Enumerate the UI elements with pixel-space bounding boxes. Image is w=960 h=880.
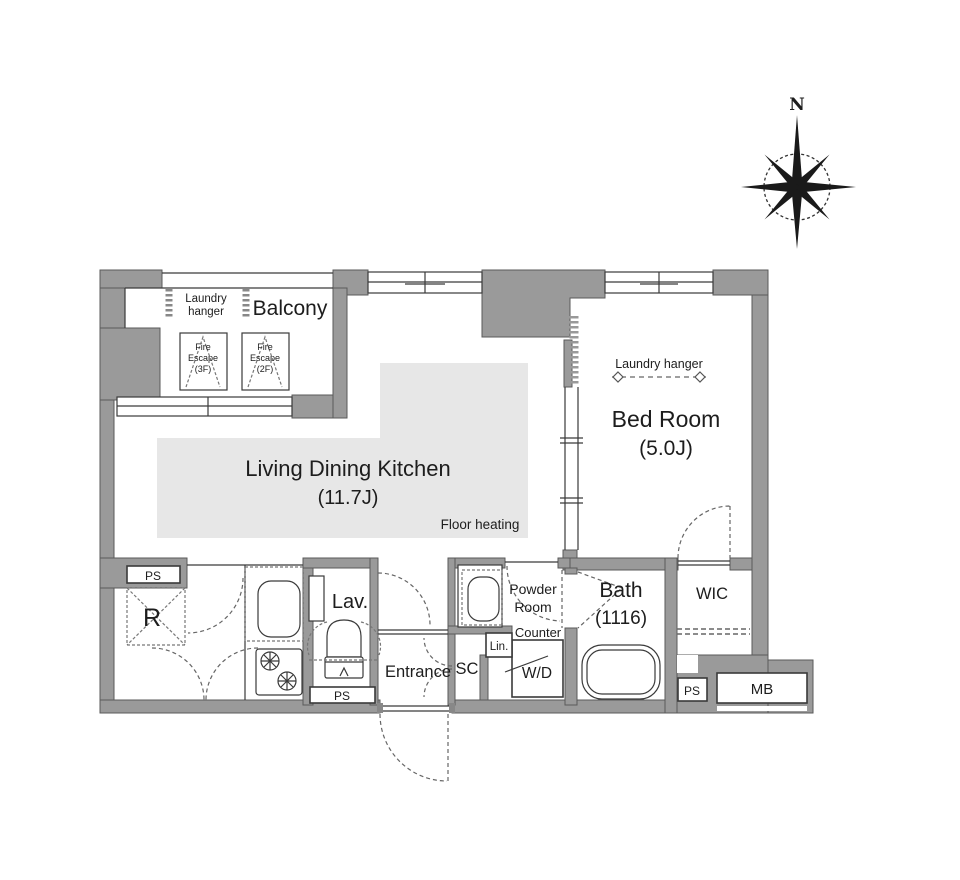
stove [256,649,302,695]
wic-floor-notch [677,655,698,673]
lav-shelf [309,576,324,621]
ps-label: PS [334,689,350,703]
wic-label: WIC [696,585,728,603]
bedroom-laundry-label: Laundry hanger [615,357,703,371]
bedroom-laundry-hanger-icon [612,372,706,382]
powder-room-door [507,566,562,628]
bath-size-label: (1116) [595,608,647,629]
balcony-label: Balcony [253,297,328,320]
shoe-closet-label: SC [456,660,479,678]
powder-room-label: Powder [509,581,557,597]
compass-rose-icon [732,115,862,252]
fire-escape-3f-label: Fire [195,342,211,352]
powder-room-label: Room [514,599,551,615]
ldk-size-label: (11.7J) [318,487,379,509]
fire-escape-3f-label: (3F) [195,364,212,374]
entrance-door [380,714,448,781]
balcony-laundry-label: hanger [188,306,224,318]
entrance-label: Entrance [385,663,451,681]
mb-slot [717,706,807,711]
fire-escape-3f-label: Escape [188,353,218,363]
kitchen-entry-doors [152,648,258,700]
ldk-label: Living Dining Kitchen [245,456,450,481]
washer-dryer-label: W/D [522,665,552,682]
floor-heating-label: Floor heating [441,517,520,532]
bath-label: Bath [599,579,642,602]
mb-label: MB [751,681,774,698]
door-jamb [377,703,383,713]
fire-escape-2f-label: Fire [257,342,273,352]
balcony-laundry-label: Laundry [185,293,227,305]
floor-plan-drawing: Laundry hanger Balcony Fire Escape (3F) … [0,0,960,880]
wic-shelf [677,629,750,634]
kitchen-cabinet-door [188,578,243,633]
bedroom-wic-door [678,506,730,558]
fire-escape-2f-label: (2F) [257,364,274,374]
refrigerator-label: R [143,604,161,632]
powder-sink [458,565,502,627]
bathtub [582,645,660,699]
linen-label: Lin. [490,641,509,653]
ps-label: PS [145,569,161,583]
floor-plan-page: Laundry hanger Balcony Fire Escape (3F) … [0,0,960,880]
north-label: N [789,95,805,115]
bedroom-size-label: (5.0J) [639,437,693,460]
ps-label: PS [684,684,700,698]
kitchen-sink [258,581,300,637]
lav-label: Lav. [332,591,368,613]
hall-door [378,573,430,625]
door-swings [152,506,730,781]
fire-escape-2f-label: Escape [250,353,280,363]
door-jamb [449,703,455,713]
bedroom-label: Bed Room [612,406,721,432]
ldk-bedroom-partition [560,387,583,550]
counter-label: Counter [515,625,562,640]
